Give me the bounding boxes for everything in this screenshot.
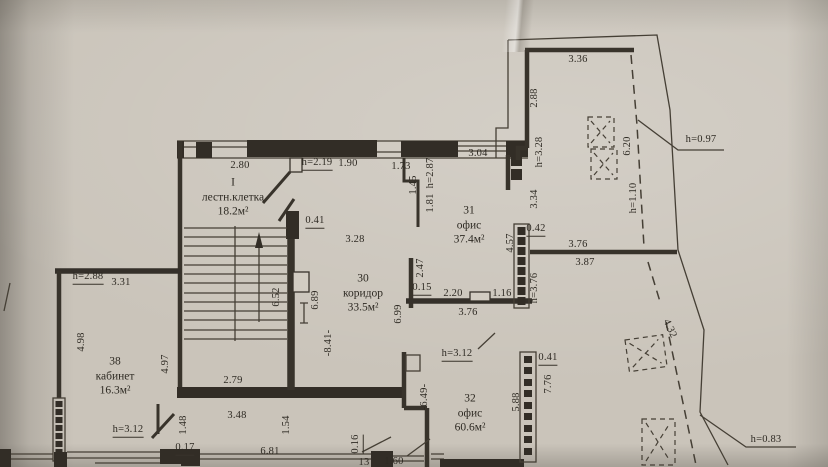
- dimension-label: 2.79: [223, 376, 242, 387]
- room-name: коридор: [343, 286, 383, 301]
- height-mark: h=1.10: [629, 183, 640, 214]
- dimension-label: 2.88: [530, 88, 541, 107]
- dimension-label: 0.16: [351, 434, 364, 453]
- plan-labels: 2.80h=2.191.901.733.041.45h=2.871.810.41…: [0, 0, 828, 467]
- photographed-floor-plan: 2.80h=2.191.901.733.041.45h=2.871.810.41…: [0, 0, 828, 467]
- room-number: I: [202, 175, 264, 190]
- room-label: 31офис37.4м²: [454, 203, 485, 247]
- room-name: офис: [454, 218, 485, 233]
- dimension-label: 5.88: [512, 392, 523, 411]
- room-area: 16.3м²: [96, 383, 135, 398]
- dimension-label: 6.52: [272, 287, 283, 306]
- dimension-label: 3.76: [458, 308, 477, 319]
- room-name: лестн.клетка: [202, 190, 264, 205]
- room-area: 18.2м²: [202, 204, 264, 219]
- room-number: 30: [343, 271, 383, 286]
- dimension-label: 4.98: [77, 332, 88, 351]
- room-number: 31: [454, 203, 485, 218]
- room-label: Iлестн.клетка18.2м²: [202, 175, 264, 219]
- dimension-label: 4.32: [660, 318, 678, 340]
- dimension-label: 6.89: [311, 290, 322, 309]
- room-name: офис: [455, 406, 486, 421]
- dimension-label: 6.20: [623, 136, 634, 155]
- dimension-label: 2.20: [443, 289, 462, 300]
- dimension-label: 2.47: [416, 258, 427, 277]
- dimension-label: 4.97: [161, 354, 172, 373]
- dimension-label: 3.87: [575, 258, 594, 269]
- dimension-label: 3.31: [111, 278, 130, 289]
- height-mark: h=2.88: [73, 272, 104, 285]
- room-number: 38: [96, 354, 135, 369]
- dimension-label: 1.90: [338, 159, 357, 170]
- dimension-label: 13: [359, 458, 370, 467]
- room-label: 38кабинет16.3м²: [96, 354, 135, 398]
- dimension-label: 3.34: [530, 189, 541, 208]
- dimension-label: 0.41: [538, 353, 557, 366]
- dimension-label: 6.81: [260, 447, 279, 458]
- dimension-label: -8.41-: [324, 330, 335, 357]
- dimension-label: 3.36: [568, 55, 587, 66]
- dimension-label: 3.48: [227, 411, 246, 422]
- dimension-label: 1.81: [426, 193, 437, 212]
- room-number: 32: [455, 391, 486, 406]
- dimension-label: 0.17: [175, 443, 194, 456]
- room-area: 60.6м²: [455, 420, 486, 435]
- height-mark: h=0.97: [686, 135, 717, 146]
- dimension-label: -6.49-: [420, 384, 431, 411]
- dimension-label: 1.54: [282, 415, 293, 434]
- dimension-label: 0.41: [305, 216, 324, 229]
- room-area: 37.4м²: [454, 232, 485, 247]
- dimension-label: 7.76: [544, 374, 555, 393]
- height-mark: h=2.19: [302, 158, 333, 171]
- dimension-label: 4.57: [506, 233, 517, 252]
- dimension-label: 1.60: [384, 457, 403, 467]
- dimension-label: 0.42: [526, 224, 545, 237]
- dimension-label: 3.04: [468, 149, 487, 160]
- dimension-label: 3.76: [568, 240, 587, 251]
- height-mark: h=2.87: [426, 158, 437, 189]
- room-area: 33.5м²: [343, 300, 383, 315]
- height-mark: h=3.12: [442, 349, 473, 362]
- height-mark: h=3.12: [113, 425, 144, 438]
- height-mark: h=3.76: [530, 273, 541, 304]
- height-mark: h=3.28: [535, 137, 546, 168]
- height-mark: h=0.83: [751, 435, 782, 446]
- dimension-label: 1.48: [179, 415, 190, 434]
- dimension-label: 1.45: [409, 175, 420, 194]
- room-label: 30коридор33.5м²: [343, 271, 383, 315]
- dimension-label: 3.28: [345, 235, 364, 246]
- dimension-label: 1.73: [391, 162, 410, 173]
- room-name: кабинет: [96, 369, 135, 384]
- dimension-label: 0.15: [412, 283, 431, 296]
- dimension-label: 1.16: [492, 289, 511, 300]
- dimension-label: 6.99: [394, 304, 405, 323]
- room-label: 32офис60.6м²: [455, 391, 486, 435]
- dimension-label: 2.80: [230, 161, 249, 172]
